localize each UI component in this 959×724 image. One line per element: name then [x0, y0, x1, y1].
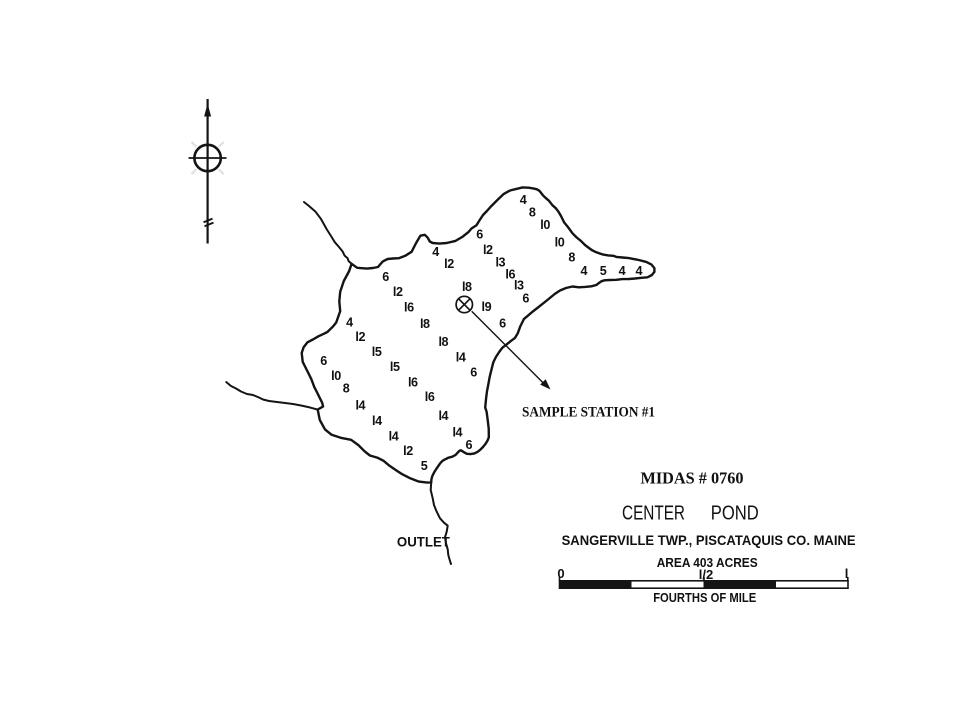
svg-text:l2: l2 — [355, 330, 365, 344]
svg-text:l8: l8 — [462, 280, 472, 294]
svg-text:6: 6 — [499, 317, 506, 331]
svg-text:0: 0 — [557, 566, 564, 581]
svg-text:4: 4 — [346, 316, 353, 330]
svg-text:SAMPLE STATION #1: SAMPLE STATION #1 — [522, 405, 655, 421]
svg-text:l9: l9 — [482, 300, 492, 314]
svg-text:SANGERVILLE TWP., PISCATAQUIS: SANGERVILLE TWP., PISCATAQUIS CO. MAINE — [562, 532, 856, 548]
svg-text:4: 4 — [520, 193, 527, 207]
svg-text:l6: l6 — [408, 376, 418, 390]
svg-text:l2: l2 — [444, 257, 454, 271]
svg-text:5: 5 — [421, 459, 428, 473]
svg-text:4: 4 — [619, 264, 626, 278]
svg-text:l2: l2 — [483, 243, 493, 257]
svg-text:POND: POND — [711, 503, 759, 525]
svg-text:l/2: l/2 — [699, 567, 713, 582]
svg-text:l4: l4 — [452, 425, 462, 439]
svg-text:l6: l6 — [404, 301, 414, 315]
svg-text:8: 8 — [343, 382, 350, 396]
svg-text:4: 4 — [580, 264, 587, 278]
svg-text:l6: l6 — [425, 390, 435, 404]
svg-text:MIDAS # 0760: MIDAS # 0760 — [641, 469, 744, 488]
svg-text:6: 6 — [465, 438, 472, 452]
svg-text:l5: l5 — [390, 360, 400, 374]
svg-text:FOURTHS OF MILE: FOURTHS OF MILE — [653, 591, 756, 605]
svg-text:l3: l3 — [495, 255, 505, 269]
svg-text:6: 6 — [522, 292, 529, 306]
svg-text:l4: l4 — [355, 398, 365, 412]
svg-text:6: 6 — [470, 366, 477, 380]
svg-text:8: 8 — [529, 205, 536, 219]
svg-text:8: 8 — [568, 251, 575, 265]
svg-text:CENTER: CENTER — [622, 503, 685, 525]
svg-text:l3: l3 — [514, 279, 524, 293]
svg-text:l4: l4 — [389, 430, 399, 444]
svg-text:l4: l4 — [372, 414, 382, 428]
svg-text:l5: l5 — [372, 345, 382, 359]
svg-text:l4: l4 — [438, 409, 448, 423]
svg-text:6: 6 — [382, 270, 389, 284]
svg-text:4: 4 — [635, 264, 642, 278]
svg-text:OUTLET: OUTLET — [397, 534, 450, 550]
svg-text:l2: l2 — [403, 444, 413, 458]
svg-text:l0: l0 — [540, 218, 550, 232]
svg-text:l8: l8 — [438, 335, 448, 349]
svg-text:l8: l8 — [420, 317, 430, 331]
svg-text:l4: l4 — [456, 351, 466, 365]
svg-text:l0: l0 — [555, 236, 565, 250]
svg-text:l2: l2 — [393, 285, 403, 299]
svg-text:6: 6 — [320, 354, 327, 368]
svg-text:l0: l0 — [331, 369, 341, 383]
svg-text:6: 6 — [476, 228, 483, 242]
svg-text:4: 4 — [432, 245, 439, 259]
svg-text:5: 5 — [600, 264, 607, 278]
